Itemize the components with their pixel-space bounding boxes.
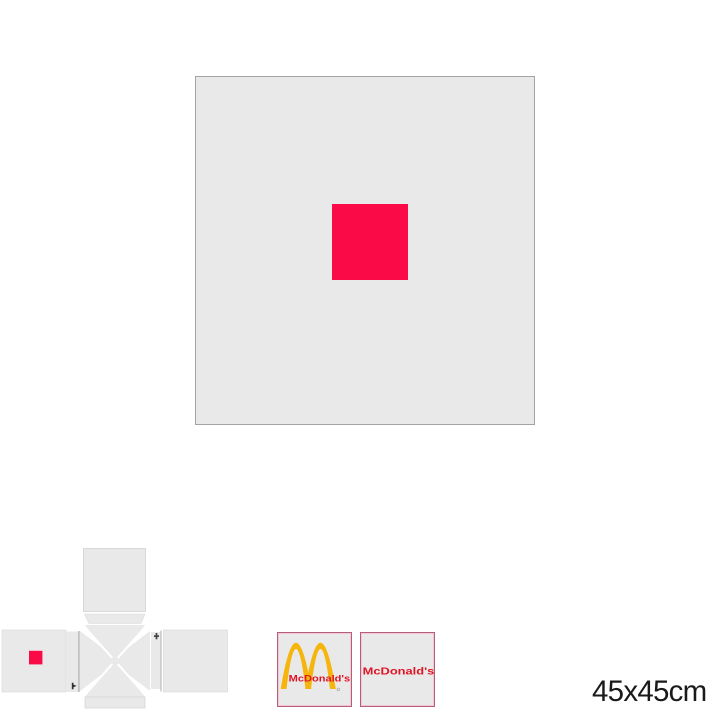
svg-text:McDonald's: McDonald's: [289, 672, 351, 683]
svg-text:McDonald's: McDonald's: [363, 667, 435, 678]
